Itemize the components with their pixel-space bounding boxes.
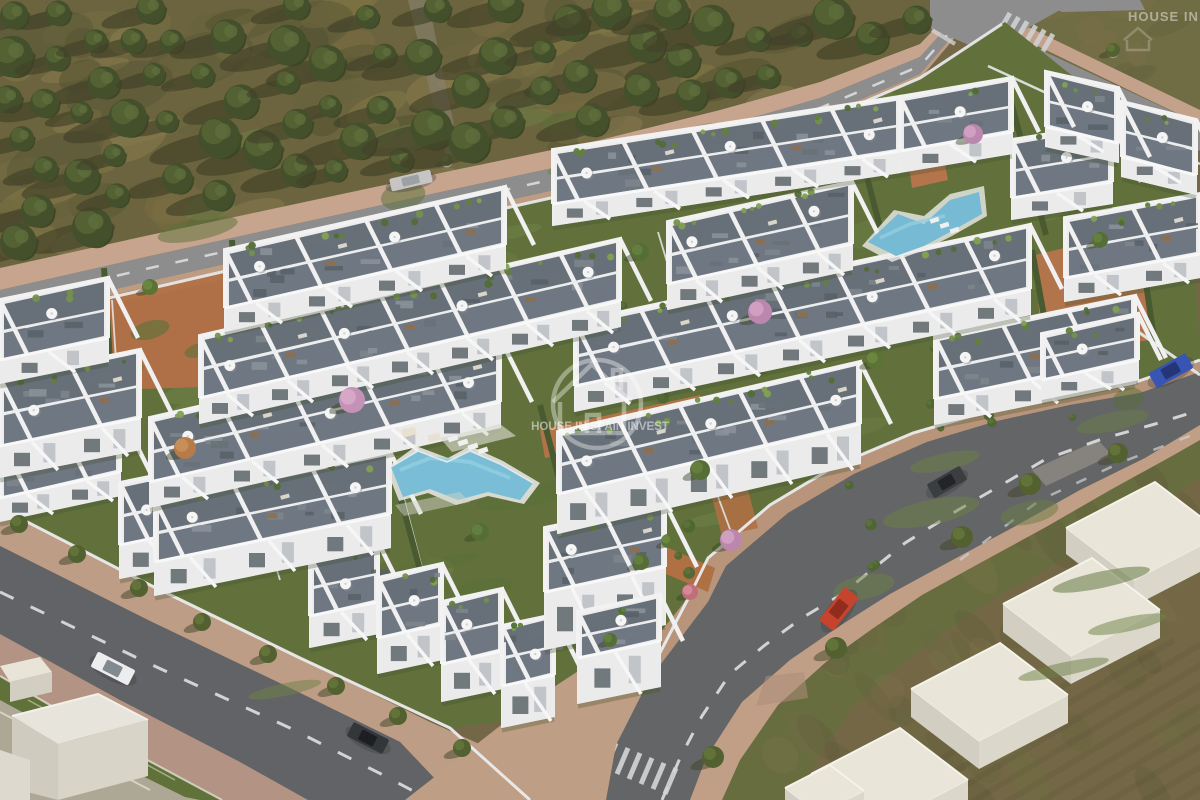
svg-text:HOUSE IN SPAIN INVEST: HOUSE IN SPAIN INVEST (531, 421, 669, 433)
svg-text:HOUSE IN SP: HOUSE IN SP (1128, 9, 1200, 24)
